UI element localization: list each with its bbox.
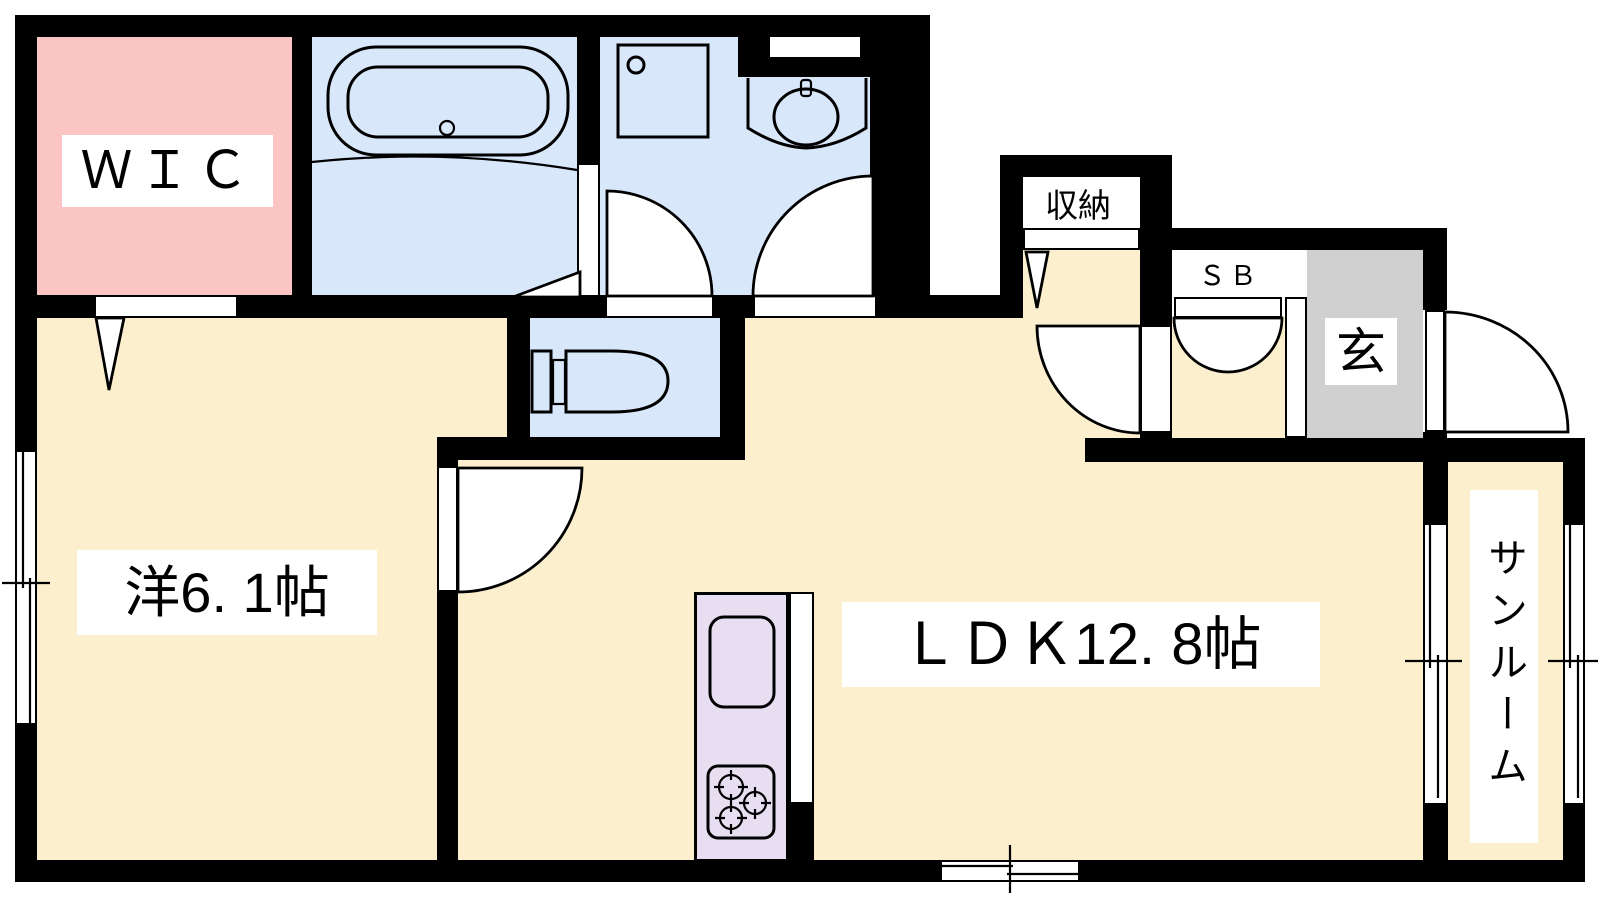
room-label-western-room: 洋6. 1帖 [77, 550, 377, 635]
room-label-shoe-box: ＳＢ [1187, 258, 1272, 295]
toilet-door-arc [607, 191, 712, 296]
stove-icon [708, 766, 774, 838]
front-door-arc [1445, 312, 1568, 432]
floor-plan: ＷＩＣ 洋6. 1帖 ＬＤＫ12. 8帖 収納 ＳＢ 玄 サンルーム [0, 0, 1600, 900]
room-label-entrance: 玄 [1325, 318, 1397, 385]
washing-machine-icon [618, 45, 708, 137]
hall-door-arc [1037, 326, 1140, 433]
kitchen-sink-icon [710, 617, 774, 707]
shoe-box-door-arcs [1174, 318, 1282, 372]
room-label-ldk: ＬＤＫ12. 8帖 [842, 602, 1320, 687]
storage-folding-door-mark [1026, 252, 1048, 308]
bathtub-icon [312, 47, 577, 170]
vanity-sink-icon [748, 78, 866, 148]
toilet-icon [532, 351, 668, 412]
room-label-sunroom: サンルーム [1470, 490, 1538, 843]
window-pane-marks [2, 452, 1598, 893]
western-room-door-arc [458, 468, 582, 592]
washroom-door-arc [753, 176, 873, 296]
room-label-wic: ＷＩＣ [62, 135, 273, 207]
room-label-storage: 収納 [1035, 185, 1121, 225]
wic-folding-door-mark [96, 318, 124, 390]
bath-folding-door-mark [513, 272, 580, 297]
